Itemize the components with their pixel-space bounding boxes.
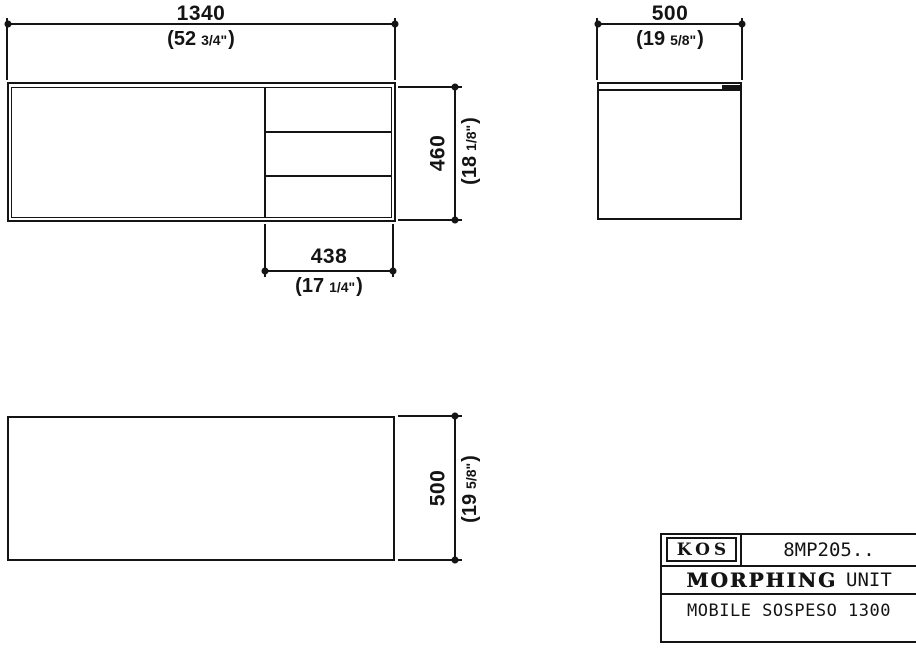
series-logo: MORPHING <box>686 568 837 592</box>
dimension-end-dot <box>5 21 12 28</box>
technical-drawing-canvas: 1340 (523/4") 460 (181/8") 438 (171/4") <box>0 0 916 650</box>
dimension-value-inches: (181/8") <box>460 117 480 185</box>
dimension-end-dot <box>739 21 746 28</box>
dimension-value-inches: (523/4") <box>167 29 235 49</box>
dimension-value-mm: 500 <box>652 3 689 24</box>
dimension-line <box>265 270 393 272</box>
title-block-row-divider-2 <box>660 593 916 595</box>
dimension-line <box>454 87 456 220</box>
dimension-value-mm: 460 <box>428 135 449 172</box>
side-view-top-panel-line <box>599 89 740 91</box>
side-view-outline <box>597 82 742 220</box>
dimension-value-mm: 1340 <box>177 3 226 24</box>
dimension-end-dot <box>452 557 459 564</box>
front-view-door-drawer-divider <box>264 87 266 218</box>
dimension-end-dot <box>595 21 602 28</box>
dimension-end-dot <box>452 84 459 91</box>
dimension-value-inches: (171/4") <box>295 276 363 296</box>
front-view-drawer-divider-1 <box>266 131 392 133</box>
product-description: MOBILE SOSPESO 1300 <box>662 597 916 625</box>
dimension-value-mm: 500 <box>428 470 449 507</box>
dimension-end-dot <box>392 21 399 28</box>
dimension-value-inches: (195/8") <box>636 29 704 49</box>
dimension-value-mm: 438 <box>311 246 348 267</box>
series-row: MORPHING UNIT <box>662 567 916 593</box>
model-code: 8MP205.. <box>742 535 916 564</box>
title-block-bottom-border <box>660 641 916 643</box>
dimension-end-dot <box>452 217 459 224</box>
dimension-end-dot <box>390 268 397 275</box>
dimension-end-dot <box>452 413 459 420</box>
series-suffix: UNIT <box>846 569 892 591</box>
dimension-end-dot <box>262 268 269 275</box>
side-view-front-edge-detail <box>722 85 740 90</box>
front-view-inner-panel-outline <box>11 87 392 218</box>
dimension-value-inches: (195/8") <box>460 455 480 523</box>
dimension-line <box>454 416 456 560</box>
front-view-drawer-divider-2 <box>266 175 392 177</box>
top-view-outline <box>7 416 395 561</box>
brand-logo: KOS <box>666 537 737 562</box>
